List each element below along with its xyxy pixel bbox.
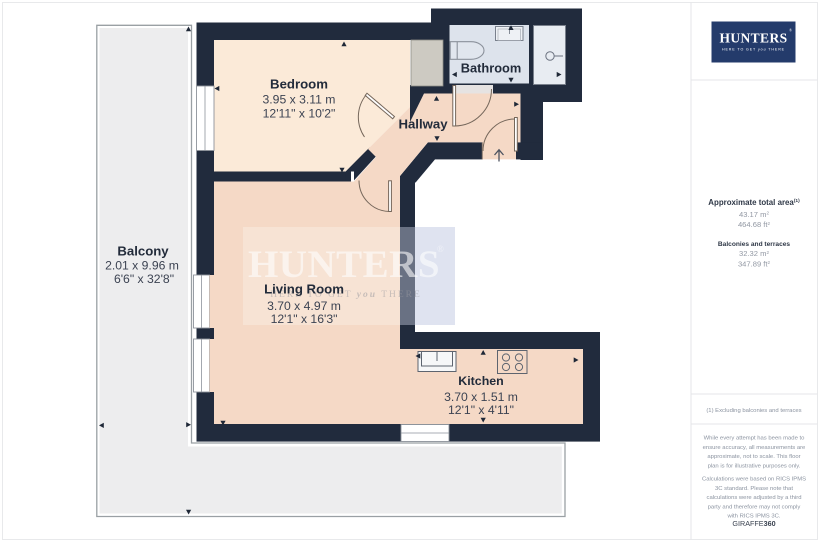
svg-text:Calculations were based on RIC: Calculations were based on RICS IPMS: [702, 477, 806, 483]
svg-text:12'1" x 4'11": 12'1" x 4'11": [448, 403, 514, 417]
svg-text:®: ®: [789, 28, 792, 33]
svg-text:3.70 x 4.97 m: 3.70 x 4.97 m: [267, 299, 341, 313]
svg-text:Kitchen: Kitchen: [458, 374, 503, 388]
svg-text:ensure accuracy, all measureme: ensure accuracy, all measurements are: [703, 445, 806, 451]
svg-text:464.68 ft2: 464.68 ft2: [738, 220, 771, 229]
svg-text:plan is for illustrative purpo: plan is for illustrative purposes only.: [708, 463, 801, 469]
svg-text:Bathroom: Bathroom: [461, 61, 521, 76]
svg-text:approximate, not to scale. Thi: approximate, not to scale. This floor: [707, 454, 800, 460]
svg-text:Hallway: Hallway: [398, 117, 448, 132]
svg-text:Living Room: Living Room: [264, 282, 344, 297]
svg-text:3.95 x 3.11 m: 3.95 x 3.11 m: [263, 93, 336, 107]
svg-text:Approximate total area(1): Approximate total area(1): [708, 198, 800, 207]
svg-text:347.89 ft2: 347.89 ft2: [738, 259, 771, 268]
svg-text:HUNTERS: HUNTERS: [719, 31, 787, 46]
svg-text:6'6" x 32'8": 6'6" x 32'8": [114, 272, 174, 286]
svg-text:3.70 x 1.51 m: 3.70 x 1.51 m: [444, 390, 518, 404]
svg-text:GIRAFFE360: GIRAFFE360: [732, 519, 775, 528]
svg-text:HERE TO GET you THERE: HERE TO GET you THERE: [722, 48, 785, 52]
svg-text:32.32 m2: 32.32 m2: [739, 249, 769, 258]
svg-text:12'1" x 16'3": 12'1" x 16'3": [271, 312, 338, 326]
svg-text:2.01 x 9.96 m: 2.01 x 9.96 m: [105, 259, 179, 273]
svg-text:HUNTERS: HUNTERS: [248, 243, 440, 286]
svg-text:party and therefore may not co: party and therefore may not comply: [708, 504, 801, 510]
svg-text:43.17 m2: 43.17 m2: [739, 210, 769, 219]
svg-text:Balcony: Balcony: [117, 244, 169, 259]
svg-text:While every attempt has been m: While every attempt has been made to: [704, 436, 806, 442]
svg-text:12'11" x 10'2": 12'11" x 10'2": [263, 107, 336, 121]
svg-text:calculations were adjusted by: calculations were adjusted by a third: [707, 495, 802, 501]
svg-text:3C standard. Please note that: 3C standard. Please note that: [715, 486, 793, 492]
svg-text:®: ®: [437, 244, 444, 254]
svg-text:Bedroom: Bedroom: [270, 77, 328, 92]
svg-text:(1) Excluding balconies and te: (1) Excluding balconies and terraces: [706, 408, 801, 414]
svg-text:Balconies and terraces: Balconies and terraces: [718, 241, 791, 248]
